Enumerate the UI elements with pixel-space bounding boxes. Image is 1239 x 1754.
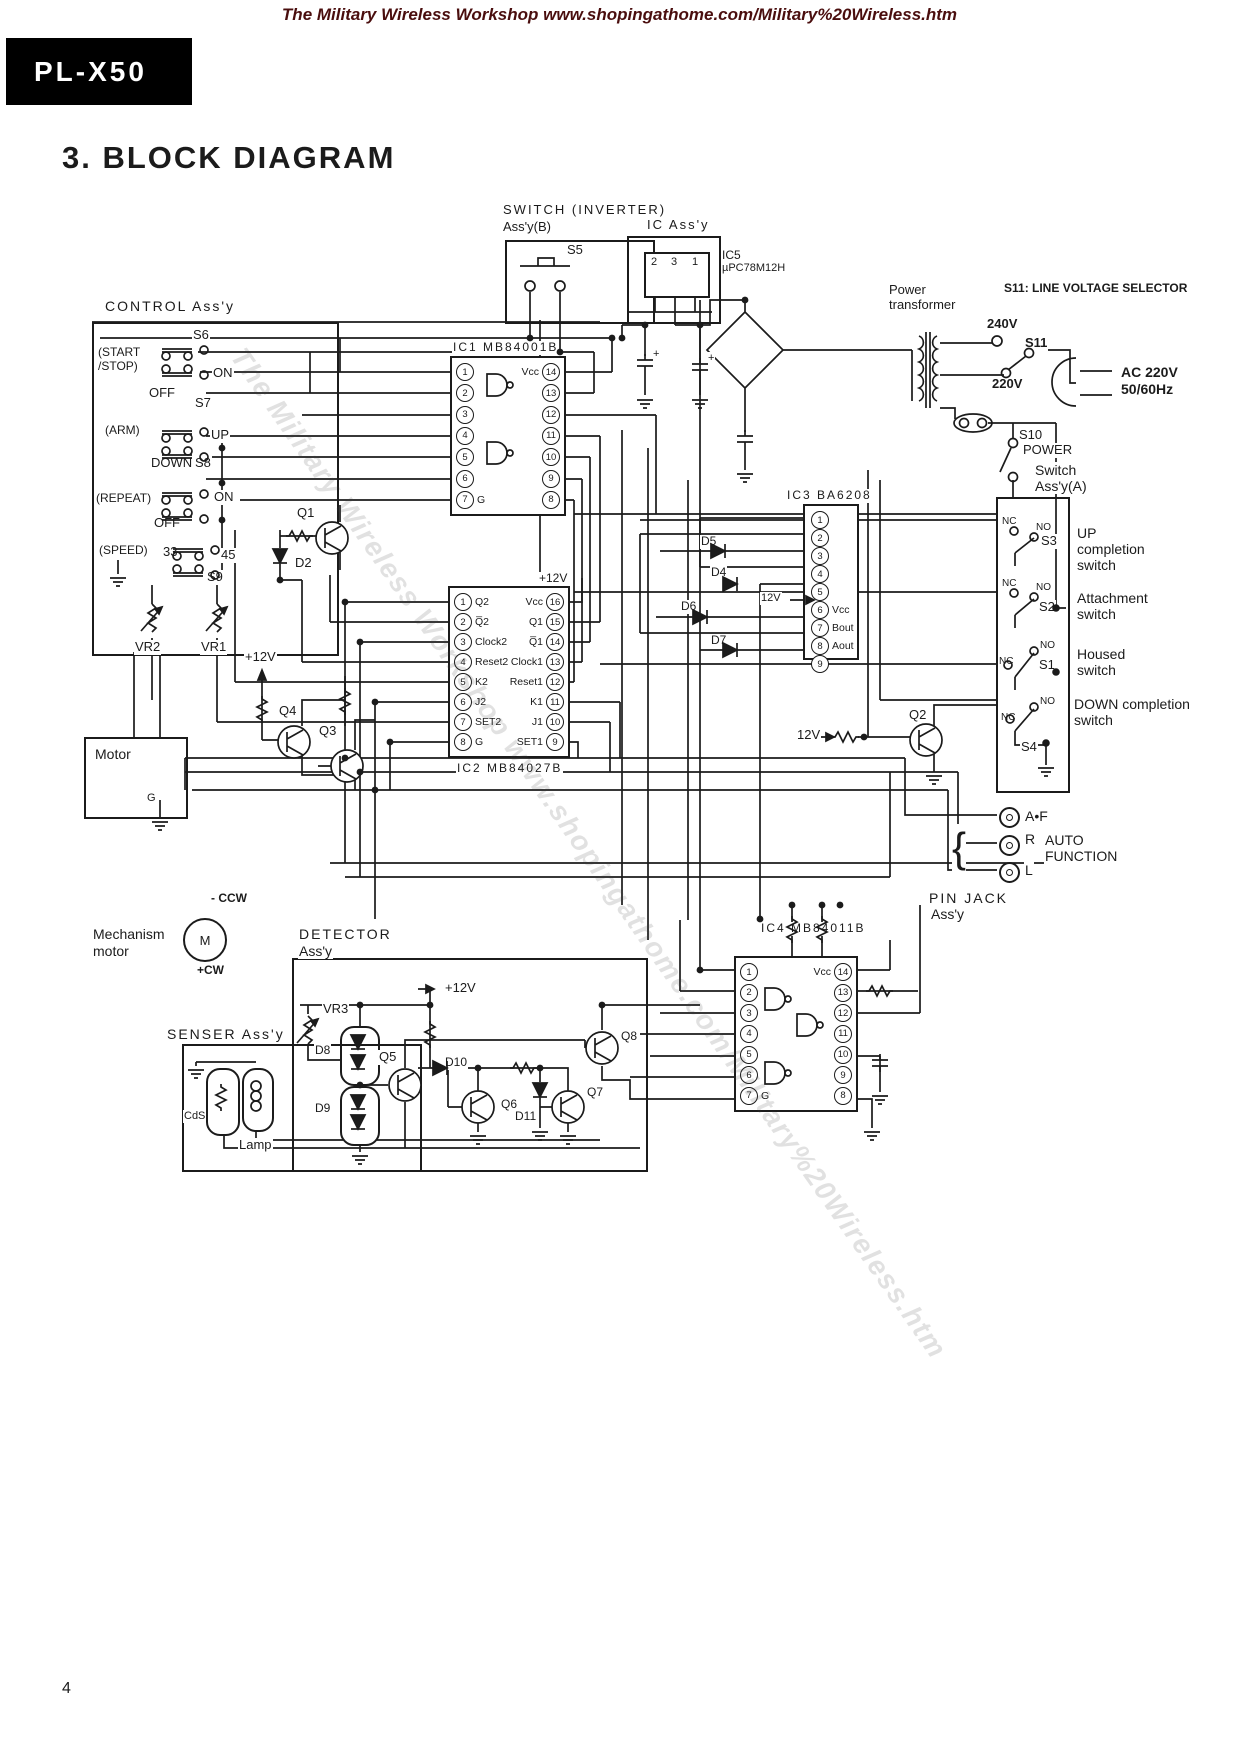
r-label: R (1024, 831, 1036, 847)
motor-g-label: G (146, 792, 157, 805)
s2-desc-1: Attachment (1076, 590, 1149, 606)
af-jack (999, 807, 1020, 828)
pin-number: 10 (546, 713, 564, 731)
ic5-pin-1: 1 (691, 256, 699, 269)
motor-label: Motor (94, 746, 132, 762)
vr2-label: VR2 (134, 640, 161, 655)
ic4-pin-row: 4 11 (740, 1025, 852, 1043)
pin-number: 3 (811, 547, 829, 565)
ic2-pin-row: 8G SET19 (454, 733, 564, 751)
section-title: 3. BLOCK DIAGRAM (62, 140, 395, 176)
speed-33: 33 (162, 545, 178, 560)
ic5-pin-3: 3 (670, 256, 678, 269)
pin-number: 3 (456, 406, 474, 424)
q1-label: Q1 (296, 506, 315, 521)
ic1-pin-row: 5 10 (456, 448, 560, 466)
pin-number: 7 (454, 713, 472, 731)
pin-label: SET1 (517, 736, 543, 748)
s1-nc: NC (998, 656, 1014, 668)
pin-number: 12 (546, 673, 564, 691)
mechanism-label-1: Mechanism (92, 926, 166, 942)
ic3-pin-row: 9 (809, 655, 853, 673)
q4-label: Q4 (278, 704, 297, 719)
pin-label: Aout (832, 640, 854, 652)
ic3-pin-row: 3 (809, 547, 853, 565)
d9-label: D9 (314, 1102, 331, 1116)
senser-assy-title: SENSER Ass'y (166, 1026, 286, 1042)
ic3-pin-row: 8Aout (809, 637, 853, 655)
ic1-pin-row: 4 11 (456, 427, 560, 445)
ic4-title: IC4 MB84011B (760, 922, 867, 936)
pin-number: 3 (740, 1004, 758, 1022)
function-label: FUNCTION (1044, 848, 1118, 864)
pin-label: Vcc (525, 596, 543, 608)
speed-45: 45 (220, 548, 236, 563)
pin-number: 13 (542, 384, 560, 402)
pin-number: 6 (456, 470, 474, 488)
pin-number: 9 (542, 470, 560, 488)
ic3-pin-row: 5 (809, 583, 853, 601)
s9-label: S9 (206, 570, 224, 585)
ic4-box: 1 Vcc14 2 13 3 12 4 11 5 10 6 9 7G 8 (734, 956, 858, 1112)
pin-number: 7 (811, 619, 829, 637)
ic2-pin-row: 2Q̅2 Q115 (454, 613, 564, 631)
detector-plus12v: +12V (444, 981, 477, 996)
ic5-part: µPC78M12H (721, 262, 786, 275)
pin-number: 6 (740, 1066, 758, 1084)
s6-off: OFF (148, 386, 176, 401)
lamp-capsule (242, 1068, 274, 1132)
d11-label: D11 (514, 1110, 537, 1124)
pin-number: 2 (454, 613, 472, 631)
d10-label: D10 (444, 1056, 468, 1070)
pin-label: Reset2 (475, 656, 508, 668)
ic2-title: IC2 MB84027B (456, 762, 563, 776)
cw-label: +CW (196, 964, 225, 978)
mechanism-label-2: motor (92, 943, 130, 959)
pin-number: 9 (834, 1066, 852, 1084)
s2-desc-2: switch (1076, 606, 1117, 622)
ic3-title: IC3 BA6208 (786, 489, 873, 503)
power-transformer-label-1: Power (888, 283, 927, 298)
s7-label: S7 (194, 396, 212, 411)
ic1-pin-row: 7G 8 (456, 491, 560, 509)
arm-label: (ARM) (104, 424, 141, 438)
af-label: A•F (1024, 808, 1049, 824)
s3-nc: NC (1001, 516, 1017, 528)
ic3-box: 1 2 3 4 5 6Vcc 7Bout 8Aout 9 (803, 504, 859, 660)
pin-label: G (761, 1090, 769, 1102)
ccw-label: - CCW (210, 892, 248, 906)
pin-number: 16 (546, 593, 564, 611)
switch-assy-a-title-1: Switch (1034, 462, 1077, 478)
pin-number: 14 (834, 963, 852, 981)
d5-label: D5 (700, 535, 717, 549)
auto-label: AUTO (1044, 832, 1085, 848)
ic4-pin-row: 1 Vcc14 (740, 963, 852, 981)
ic2-plus12v: +12V (538, 572, 568, 586)
control-assy-title: CONTROL Ass'y (104, 298, 236, 314)
s10-label: S10 (1018, 428, 1043, 443)
l-jack (999, 862, 1020, 883)
d2-label: D2 (294, 556, 313, 571)
pin-number: 9 (811, 655, 829, 673)
s4-no: NO (1039, 696, 1056, 708)
q5-label: Q5 (378, 1050, 397, 1065)
s3-id: S3 (1040, 534, 1058, 549)
page-number: 4 (62, 1680, 71, 1698)
s11-label: S11 (1024, 336, 1048, 351)
pin-number: 1 (454, 593, 472, 611)
s5-label: S5 (566, 243, 584, 258)
ic3-pin-row: 6Vcc (809, 601, 853, 619)
ic5-ref: IC5 (721, 249, 742, 263)
ic2-pin-row: 5K2 Reset112 (454, 673, 564, 691)
s1-desc-1: Housed (1076, 646, 1126, 662)
pin-label: Vcc (832, 604, 850, 616)
s7-up: UP (210, 428, 230, 443)
v240-label: 240V (986, 317, 1018, 332)
pin-number: 8 (811, 637, 829, 655)
pin-number: 10 (834, 1046, 852, 1064)
pin-number: 14 (546, 633, 564, 651)
pin-number: 4 (740, 1025, 758, 1043)
ic1-pin-row: 1 Vcc14 (456, 363, 560, 381)
ic1-pin-row: 6 9 (456, 470, 560, 488)
pin-number: 7 (740, 1087, 758, 1105)
s4-nc: NC (1000, 712, 1016, 724)
model-badge: PL-X50 (6, 38, 192, 105)
pin-number: 9 (546, 733, 564, 751)
pin-number: 1 (811, 511, 829, 529)
ic1-box: 1 Vcc14 2 13 3 12 4 11 5 10 6 9 7G 8 (450, 356, 566, 516)
pin-number: 1 (740, 963, 758, 981)
ic1-pin-row: 3 12 (456, 406, 560, 424)
ic4-pin-row: 5 10 (740, 1046, 852, 1064)
pin-number: 11 (542, 427, 560, 445)
pin-label: Q1 (529, 616, 543, 628)
pin-number: 5 (811, 583, 829, 601)
pin-number: 4 (456, 427, 474, 445)
pin-label: Clock2 (475, 636, 507, 648)
s3-desc-1: UP (1076, 525, 1097, 541)
s3-desc-2: completion (1076, 541, 1146, 557)
line-voltage-selector-note: S11: LINE VOLTAGE SELECTOR (1003, 282, 1188, 296)
pin-number: 5 (740, 1046, 758, 1064)
ic3-pin-row: 1 (809, 511, 853, 529)
pin-label: K1 (530, 696, 543, 708)
q8-label: Q8 (620, 1030, 638, 1044)
start-stop-label-1: (START (97, 346, 141, 360)
ic4-pin-row: 2 13 (740, 984, 852, 1002)
s2-id: S2 (1038, 600, 1056, 615)
s4-desc-2: switch (1073, 712, 1114, 728)
page-header-url: The Military Wireless Workshop www.shopi… (0, 5, 1239, 25)
pin-number: 5 (456, 448, 474, 466)
pinjack-title-1: PIN JACK (928, 890, 1009, 906)
pin-number: 4 (454, 653, 472, 671)
d4-label: D4 (710, 566, 727, 580)
s4-desc-1: DOWN completion (1073, 696, 1191, 712)
pin-number: 11 (834, 1025, 852, 1043)
q2-label: Q2 (908, 708, 927, 723)
pin-label: SET2 (475, 716, 501, 728)
pin-label: G (477, 494, 485, 506)
inverter-switch-sub: Ass'y(B) (502, 220, 552, 235)
pin-label: Vcc (813, 966, 831, 978)
ic3-pin-row: 4 (809, 565, 853, 583)
s3-no: NO (1035, 522, 1052, 534)
pin-number: 5 (454, 673, 472, 691)
speed-label: (SPEED) (98, 544, 149, 558)
d6-label: D6 (680, 600, 697, 614)
s3-desc-3: switch (1076, 557, 1117, 573)
pin-number: 14 (542, 363, 560, 381)
s6-label: S6 (192, 328, 210, 343)
d8-label: D8 (314, 1044, 331, 1058)
pin-label: K2 (475, 676, 488, 688)
ic1-title: IC1 MB84001B (452, 341, 559, 355)
pin-number: 8 (834, 1087, 852, 1105)
s2-no: NO (1035, 582, 1052, 594)
q3-label: Q3 (318, 724, 337, 739)
d7-label: D7 (710, 634, 727, 648)
pin-number: 12 (542, 406, 560, 424)
s1-no: NO (1039, 640, 1056, 652)
start-stop-label-2: /STOP) (97, 360, 139, 374)
s8-on: ON (213, 490, 235, 505)
cap-plus-1: + (652, 348, 660, 361)
q7-label: Q7 (586, 1086, 604, 1100)
pin-label: Q̅2 (475, 616, 489, 628)
ic2-pin-row: 4Reset2 Clock113 (454, 653, 564, 671)
q2-12v-label: 12V (796, 728, 821, 743)
power-transformer-label-2: transformer (888, 298, 956, 313)
s2-nc: NC (1001, 578, 1017, 590)
vr1-label: VR1 (200, 640, 227, 655)
detector-title-1: DETECTOR (298, 926, 393, 942)
pin-number: 3 (454, 633, 472, 651)
cds-capsule (206, 1068, 240, 1136)
ic4-pin-row: 7G 8 (740, 1087, 852, 1105)
repeat-label: (REPEAT) (95, 492, 152, 506)
pin-number: 10 (542, 448, 560, 466)
ic4-pin-row: 3 12 (740, 1004, 852, 1022)
ic3-pin-row: 2 (809, 529, 853, 547)
pin-number: 7 (456, 491, 474, 509)
ic1-pin-row: 2 13 (456, 384, 560, 402)
s4-id: S4 (1020, 740, 1038, 755)
pin-number: 13 (546, 653, 564, 671)
ic2-pin-row: 6J2 K111 (454, 693, 564, 711)
ic-assy-title: IC Ass'y (646, 218, 711, 233)
pin-label: Reset1 (510, 676, 543, 688)
pin-number: 8 (542, 491, 560, 509)
ac-freq-label: 50/60Hz (1120, 381, 1174, 397)
pin-label: J1 (532, 716, 543, 728)
pin-number: 1 (456, 363, 474, 381)
pin-number: 2 (811, 529, 829, 547)
pin-label: Q2 (475, 596, 489, 608)
pin-label: Bout (832, 622, 854, 634)
s1-id: S1 (1038, 658, 1056, 673)
ac-voltage-label: AC 220V (1120, 364, 1179, 380)
pin-label: J2 (475, 696, 486, 708)
pin-number: 11 (546, 693, 564, 711)
detector-title-2: Ass'y (298, 943, 333, 959)
s8-off: OFF (153, 516, 181, 531)
s7-down: DOWN (150, 456, 193, 471)
pin-label: Clock1 (511, 656, 543, 668)
cap-plus-2: + (707, 352, 715, 365)
scanned-service-manual-page: The Military Wireless Workshop www.shopi… (0, 0, 1239, 1754)
switch-assy-a-title-2: Ass'y(A) (1034, 478, 1088, 494)
ic4-pin-row: 6 9 (740, 1066, 852, 1084)
pin-number: 2 (456, 384, 474, 402)
pin-label: Q̅1 (529, 636, 543, 648)
r-jack (999, 835, 1020, 856)
pinjack-title-2: Ass'y (930, 906, 965, 922)
mechanism-motor-symbol: M (183, 918, 227, 962)
s6-on: ON (212, 366, 234, 381)
ic2-pin-row: 3Clock2 Q̅114 (454, 633, 564, 651)
ic5-pin-2: 2 (650, 256, 658, 269)
ic3-pin-row: 7Bout (809, 619, 853, 637)
l-label: L (1024, 862, 1034, 878)
s1-desc-2: switch (1076, 662, 1117, 678)
power-switch-label: POWER (1022, 443, 1073, 458)
pin-number: 13 (834, 984, 852, 1002)
inverter-switch-title: SWITCH (INVERTER) (502, 203, 667, 218)
ic2-pin-row: 7SET2 J110 (454, 713, 564, 731)
pin-label: Vcc (521, 366, 539, 378)
ic2-pin-row: 1Q2 Vcc16 (454, 593, 564, 611)
ic3-12v-label: 12V (760, 592, 782, 605)
s8-label: S8 (194, 456, 212, 471)
v220-label: 220V (991, 377, 1023, 392)
vr3-label: VR3 (322, 1002, 349, 1017)
pin-number: 2 (740, 984, 758, 1002)
plus12v-q4-label: +12V (244, 650, 277, 665)
pin-number: 6 (454, 693, 472, 711)
pin-number: 15 (546, 613, 564, 631)
pin-number: 6 (811, 601, 829, 619)
cds-label: CdS (183, 1110, 206, 1123)
lamp-label: Lamp (238, 1138, 273, 1153)
pin-number: 8 (454, 733, 472, 751)
pin-number: 4 (811, 565, 829, 583)
pin-number: 12 (834, 1004, 852, 1022)
pin-label: G (475, 736, 483, 748)
pinjack-brace: { (952, 824, 966, 872)
ic2-box: 1Q2 Vcc16 2Q̅2 Q115 3Clock2 Q̅114 4Reset… (448, 586, 570, 758)
